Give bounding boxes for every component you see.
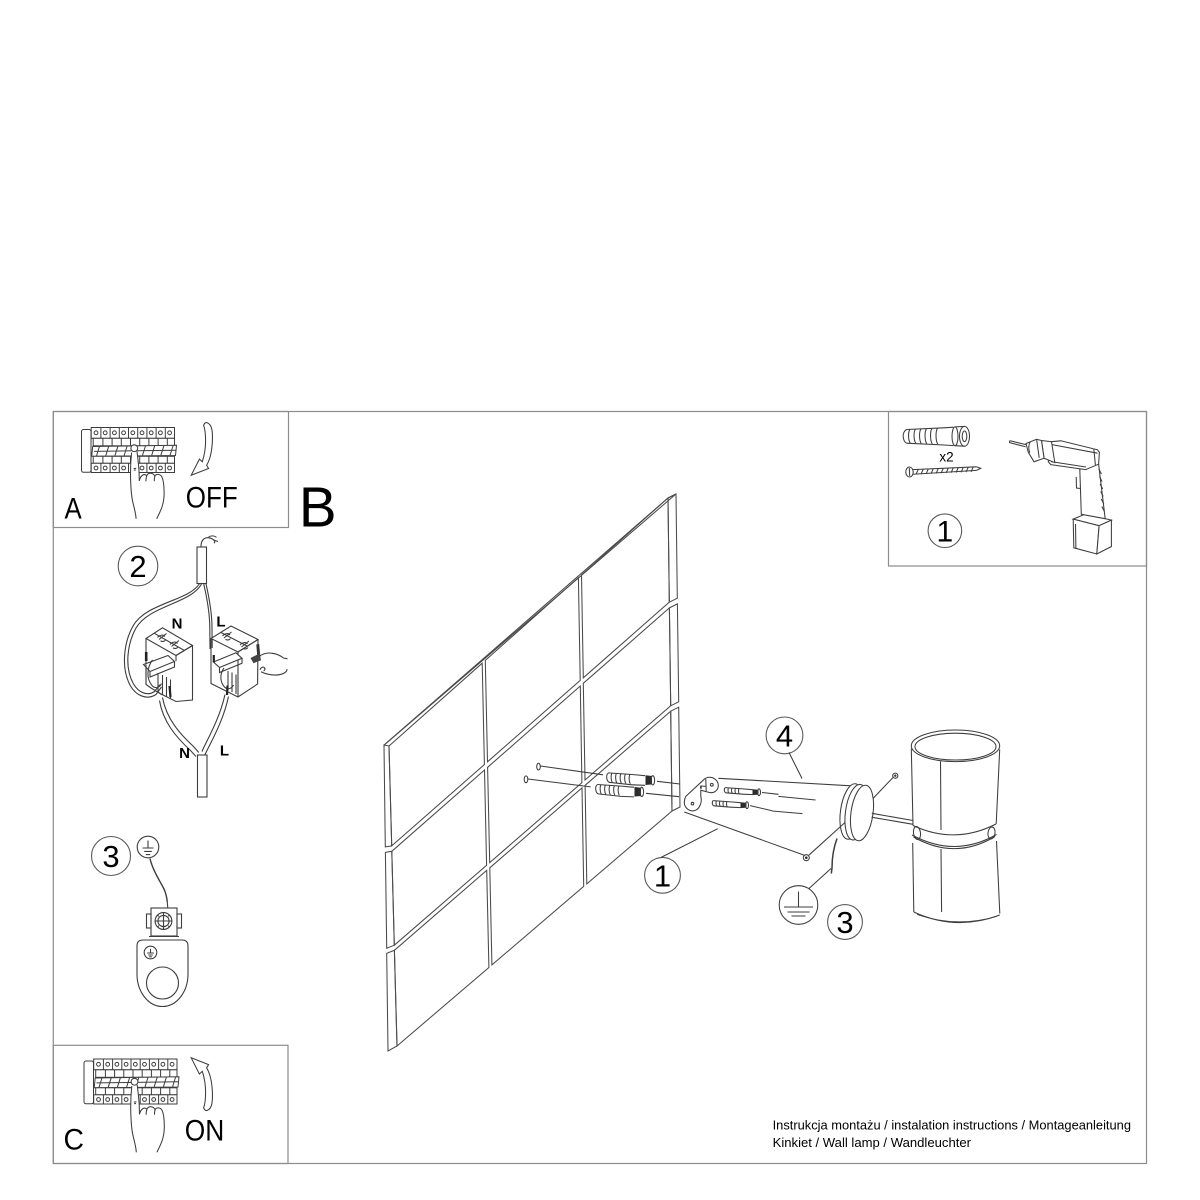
svg-text:3: 3	[102, 839, 119, 874]
svg-text:B: B	[299, 475, 337, 538]
svg-text:Kinkiet / Wall lamp / Wandleuc: Kinkiet / Wall lamp / Wandleuchter	[773, 1135, 972, 1150]
svg-text:A: A	[65, 492, 82, 525]
svg-text:Instrukcja montażu / instalati: Instrukcja montażu / instalation instruc…	[773, 1118, 1131, 1133]
svg-text:N: N	[172, 616, 183, 633]
svg-text:3: 3	[836, 905, 853, 940]
svg-text:L: L	[220, 743, 229, 760]
svg-text:OFF: OFF	[186, 482, 238, 515]
svg-text:1: 1	[654, 858, 671, 893]
svg-text:N: N	[179, 745, 190, 762]
svg-text:2: 2	[129, 549, 146, 584]
svg-text:4: 4	[776, 718, 793, 753]
svg-text:1: 1	[937, 516, 954, 549]
svg-text:x2: x2	[939, 450, 953, 465]
svg-text:ON: ON	[185, 1115, 225, 1148]
svg-text:L: L	[216, 614, 225, 631]
svg-text:C: C	[64, 1124, 85, 1157]
